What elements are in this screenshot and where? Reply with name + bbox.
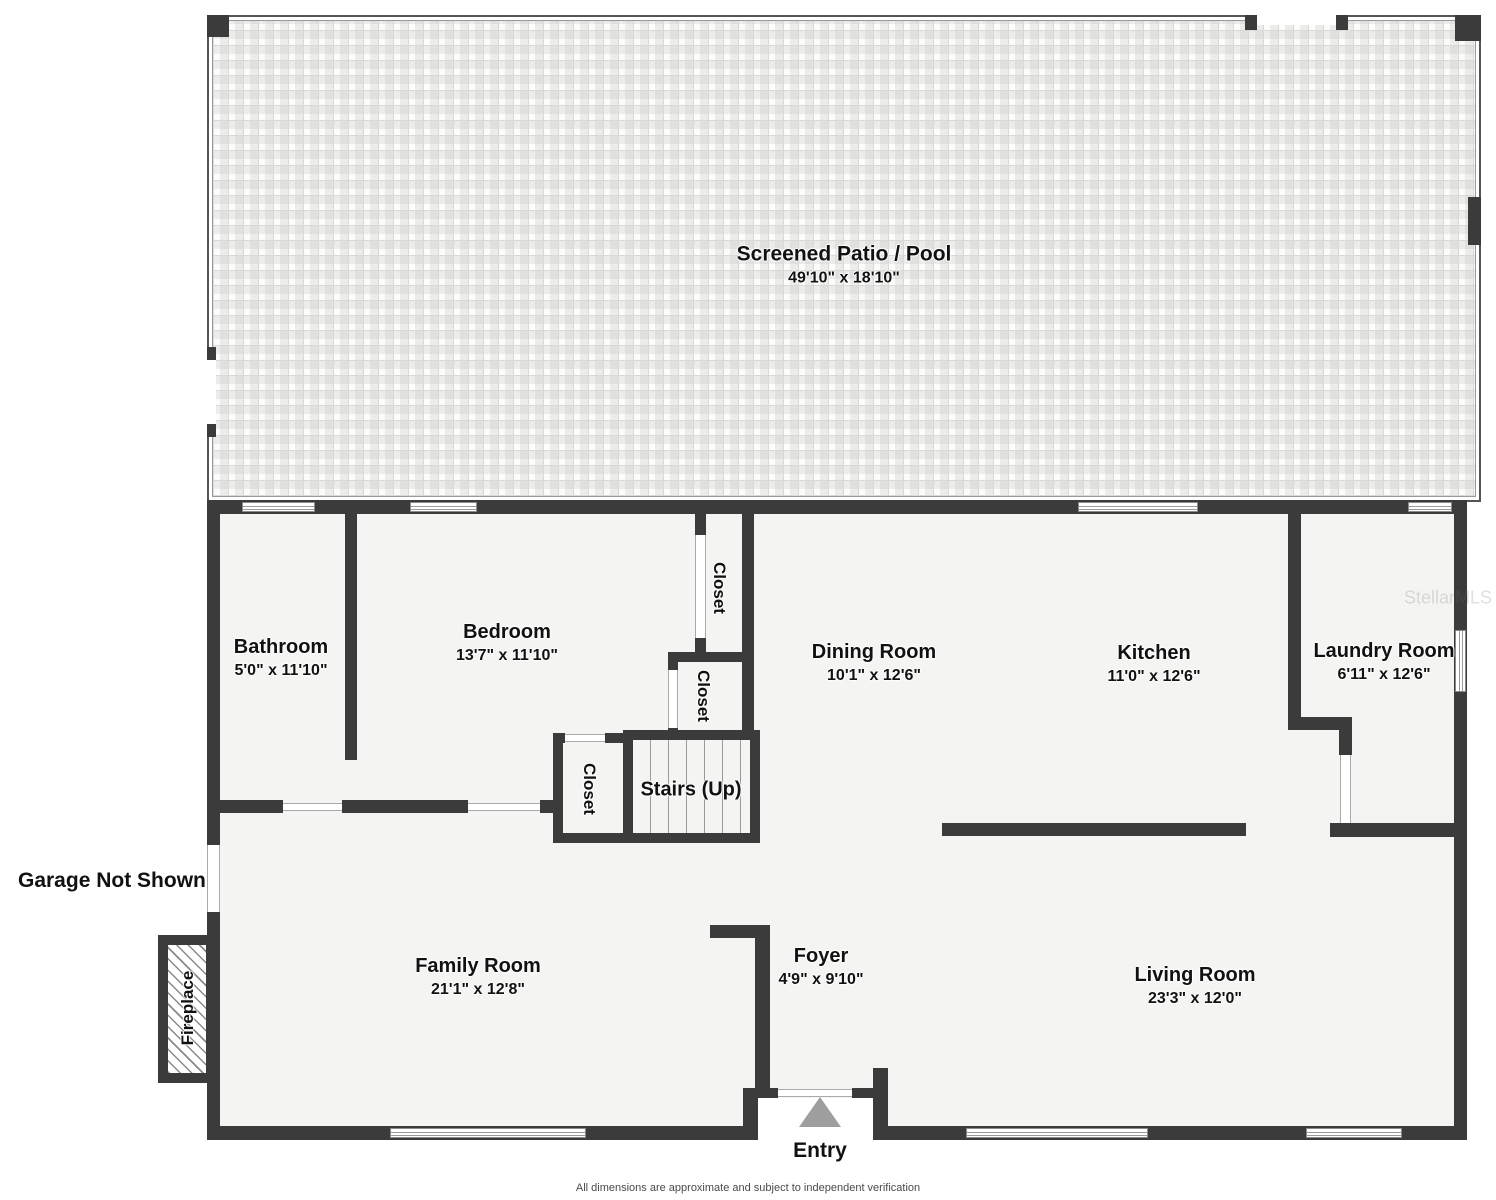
room-dims: 5'0" x 11'10" — [234, 662, 328, 680]
door-opening — [1340, 755, 1351, 823]
patio-door-jamb — [207, 347, 216, 360]
window — [390, 1128, 586, 1138]
room-label-laundry: Laundry Room 6'11" x 12'6" — [1313, 640, 1454, 684]
room-dims: 4'9" x 9'10" — [778, 971, 863, 989]
fireplace-label: Fireplace — [178, 971, 198, 1046]
window — [1408, 502, 1452, 512]
patio-door-jamb — [207, 424, 216, 437]
wall — [553, 733, 563, 843]
wall — [750, 740, 760, 843]
wall — [873, 1068, 888, 1140]
entry-door-jamb — [852, 1088, 878, 1098]
room-name: Stairs (Up) — [640, 779, 741, 802]
room-label-dining: Dining Room 10'1" x 12'6" — [812, 641, 936, 685]
patio-screen-opening — [206, 359, 216, 425]
closet-label: Closet — [709, 562, 729, 614]
patio-corner-post — [207, 15, 229, 37]
wall — [207, 500, 1467, 514]
wall — [623, 740, 633, 843]
wall — [668, 652, 754, 662]
wall — [1339, 730, 1352, 755]
window — [410, 502, 477, 512]
wall — [623, 730, 760, 740]
closet-door — [695, 535, 706, 638]
house-floor — [207, 500, 1467, 1140]
room-name: Dining Room — [812, 641, 936, 664]
room-label-foyer: Foyer 4'9" x 9'10" — [778, 945, 863, 989]
room-name: Screened Patio / Pool — [737, 243, 952, 267]
closet-door — [565, 734, 605, 742]
wall — [1288, 717, 1352, 730]
room-dims: 13'7" x 11'10" — [456, 647, 558, 665]
window — [1306, 1128, 1402, 1138]
garage-opening — [207, 845, 220, 912]
kitchen-counter — [942, 823, 1246, 836]
wall — [553, 833, 623, 843]
patio-corner-post — [1455, 15, 1481, 41]
stairs-label: Stairs (Up) — [640, 779, 741, 802]
room-dims: 21'1" x 12'8" — [415, 981, 541, 999]
room-label-bathroom: Bathroom 5'0" x 11'10" — [234, 636, 328, 680]
entry-door — [778, 1089, 852, 1097]
room-name: Foyer — [778, 945, 863, 968]
room-label-bedroom: Bedroom 13'7" x 11'10" — [456, 621, 558, 665]
room-label-patio: Screened Patio / Pool 49'10" x 18'10" — [737, 243, 952, 288]
room-dims: 10'1" x 12'6" — [812, 667, 936, 685]
entry-door-jamb — [752, 1088, 778, 1098]
room-dims: 49'10" x 18'10" — [737, 270, 952, 288]
wall — [207, 800, 283, 813]
window — [1455, 630, 1466, 692]
room-name: Living Room — [1134, 964, 1255, 987]
room-name: Bedroom — [456, 621, 558, 644]
wall — [1330, 823, 1467, 837]
patio-door-jamb — [1336, 15, 1348, 30]
closet-label: Closet — [693, 670, 713, 722]
wall — [668, 662, 678, 670]
entry-arrow-icon — [799, 1097, 841, 1127]
wall — [623, 833, 760, 843]
room-label-kitchen: Kitchen 11'0" x 12'6" — [1107, 642, 1200, 686]
room-label-family: Family Room 21'1" x 12'8" — [415, 955, 541, 999]
room-name: Kitchen — [1107, 642, 1200, 665]
room-name: Bathroom — [234, 636, 328, 659]
disclaimer-text: All dimensions are approximate and subje… — [576, 1182, 920, 1194]
wall — [742, 514, 754, 740]
door-opening — [468, 803, 540, 811]
garage-note: Garage Not Shown — [18, 869, 206, 893]
door-opening — [283, 803, 342, 811]
wall — [345, 514, 357, 760]
watermark: StellarMLS — [1404, 588, 1492, 609]
window — [966, 1128, 1148, 1138]
floor-plan: Screened Patio / Pool 49'10" x 18'10" Ba… — [0, 0, 1496, 1200]
wall — [695, 514, 706, 535]
room-dims: 23'3" x 12'0" — [1134, 990, 1255, 1008]
wall — [342, 800, 468, 813]
patio-wall-post — [1468, 197, 1481, 245]
closet-door — [668, 670, 678, 728]
wall — [605, 733, 623, 743]
room-name: Family Room — [415, 955, 541, 978]
window — [242, 502, 315, 512]
patio-door-jamb — [1245, 15, 1257, 30]
room-dims: 11'0" x 12'6" — [1107, 668, 1200, 686]
entry-label: Entry — [793, 1139, 847, 1163]
room-label-living: Living Room 23'3" x 12'0" — [1134, 964, 1255, 1008]
closet-label: Closet — [579, 763, 599, 815]
room-name: Laundry Room — [1313, 640, 1454, 663]
room-dims: 6'11" x 12'6" — [1313, 666, 1454, 684]
wall — [755, 925, 770, 1090]
window — [1078, 502, 1198, 512]
wall — [207, 514, 220, 845]
patio-screen-door-opening — [1257, 14, 1336, 25]
wall — [1288, 514, 1301, 730]
